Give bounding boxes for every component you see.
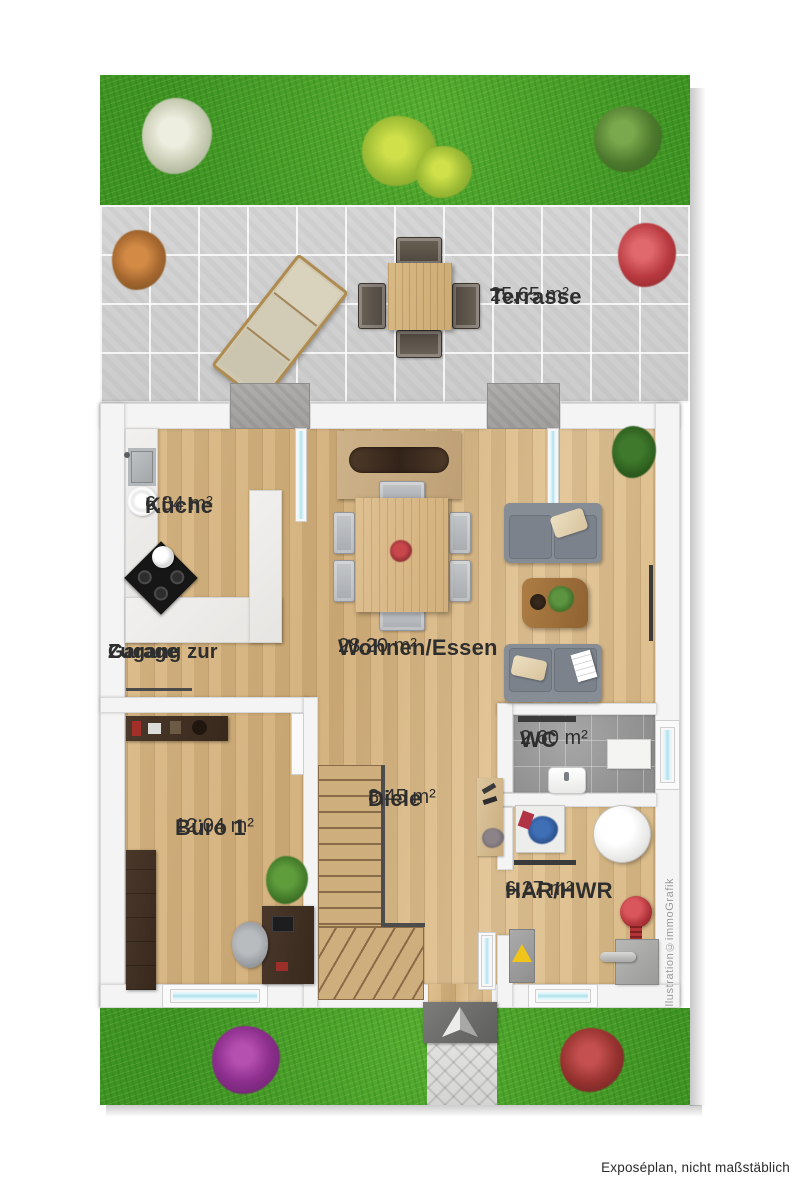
shelf-ornament xyxy=(192,720,207,735)
window-har-bottom xyxy=(536,990,590,1002)
wc-shelf xyxy=(518,716,576,722)
entry-path xyxy=(427,1042,497,1105)
sofa-top xyxy=(504,503,602,563)
terrace-table xyxy=(388,263,452,330)
terrace-chair-left xyxy=(358,283,386,329)
office-chair xyxy=(232,922,268,968)
har-shelf xyxy=(514,860,576,865)
shelf-box xyxy=(170,721,181,734)
office-cabinet xyxy=(126,850,156,990)
entry-arrow-icon-right xyxy=(460,1007,478,1037)
office-area: 12,04 m² xyxy=(175,815,254,838)
wc-area: 2,60 m² xyxy=(520,727,588,750)
hall-area: 8,45 m² xyxy=(368,786,436,809)
tv-wall-mounted xyxy=(649,565,653,641)
living-area: 28,20 m² xyxy=(338,635,417,658)
kitchen-counter-right xyxy=(249,490,282,643)
shoe-item-dark xyxy=(483,796,498,805)
shoe-item-dark xyxy=(482,783,497,794)
coffee-table-bowl xyxy=(530,594,546,610)
entry-canopy xyxy=(423,1002,497,1043)
terrace-door-leaf-kitchen xyxy=(296,429,306,521)
office-desk xyxy=(262,906,314,984)
dining-chair-left-1 xyxy=(333,512,355,554)
metal-pipe xyxy=(600,952,636,962)
wall-wc-har-divider xyxy=(497,793,657,807)
garage-access-line2: Garage xyxy=(108,641,178,664)
floorplan-canvas: Terrasse 25,65 m² xyxy=(0,0,799,1200)
staircase-winders xyxy=(318,927,424,1000)
terrace-area: 25,65 m² xyxy=(490,284,569,307)
washing-machine xyxy=(516,806,564,852)
boiler-tank xyxy=(594,806,650,862)
wall-office-top xyxy=(100,697,310,713)
dining-chair-bottom xyxy=(379,609,425,631)
dining-chair-right-1 xyxy=(449,512,471,554)
laptop xyxy=(272,916,294,932)
wc-washbasin xyxy=(549,768,585,793)
plan-shadow-right xyxy=(690,88,706,1106)
terrace-door-mat-living xyxy=(487,383,560,429)
plan-shadow-bottom xyxy=(106,1105,702,1117)
wall-top-2 xyxy=(310,403,487,429)
window-office-bottom xyxy=(171,990,259,1002)
kitchen-pot xyxy=(152,546,174,568)
terrace-chair-bottom xyxy=(396,330,442,358)
terrace-chair-top xyxy=(396,237,442,265)
har-area: 6,27 m² xyxy=(505,878,573,901)
watermark-text: Illustration©immoGrafik xyxy=(664,845,676,1010)
entry-arrow-icon-left xyxy=(442,1007,460,1037)
desk-item-red xyxy=(276,962,288,971)
kitchen-area: 6,84 m² xyxy=(145,493,213,516)
decor-bowl xyxy=(349,447,449,473)
sofa-cushion xyxy=(509,515,552,559)
burner xyxy=(167,567,187,587)
kitchen-faucet xyxy=(124,452,130,458)
entry-sidelight xyxy=(482,936,492,986)
office-wall-shelf xyxy=(126,716,228,741)
wc-toilet xyxy=(608,740,650,768)
garage-door-line xyxy=(126,688,192,691)
burner xyxy=(151,584,171,604)
dining-chair-left-2 xyxy=(333,560,355,602)
shelf-book-red xyxy=(132,721,141,736)
heating-unit xyxy=(616,940,658,984)
shelf-book-white xyxy=(148,723,161,734)
dining-chair-right-2 xyxy=(449,560,471,602)
laundry-blue xyxy=(528,816,558,844)
basin-faucet xyxy=(564,772,569,781)
burner xyxy=(135,567,155,587)
office-door-leaf xyxy=(291,713,304,775)
footer-note: Exposéplan, nicht maßstäblich xyxy=(500,1160,790,1175)
window-wc-right xyxy=(661,728,674,782)
wall-wc-top xyxy=(497,703,657,715)
kitchen-sink xyxy=(128,448,156,486)
stair-handrail-turn xyxy=(381,923,425,927)
terrace-door-mat-kitchen xyxy=(230,383,310,429)
terrace-chair-right xyxy=(452,283,480,329)
